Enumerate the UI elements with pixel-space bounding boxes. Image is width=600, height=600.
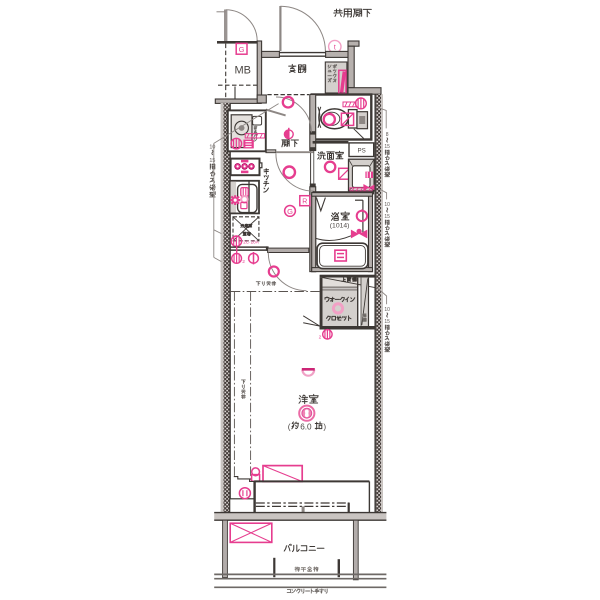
svg-text:(1014): (1014): [330, 222, 350, 229]
svg-text:6.0: 6.0: [300, 422, 312, 431]
svg-text:(: (: [288, 422, 291, 431]
svg-text:2: 2: [319, 334, 322, 340]
svg-text:PS: PS: [358, 148, 366, 155]
svg-text:t: t: [334, 45, 336, 52]
svg-text:15: 15: [384, 319, 390, 325]
svg-text:10: 10: [384, 202, 390, 208]
svg-text:2C·20A: 2C·20A: [243, 239, 260, 244]
svg-text:2: 2: [242, 259, 245, 265]
svg-text:15: 15: [384, 214, 390, 220]
svg-text:8: 8: [386, 132, 389, 138]
svg-text:R: R: [302, 199, 307, 206]
svg-text:G: G: [287, 207, 293, 216]
svg-text:MB: MB: [235, 65, 252, 77]
svg-text:10: 10: [209, 145, 215, 151]
svg-text:G: G: [239, 45, 245, 54]
svg-text:): ): [323, 422, 326, 431]
svg-text:15: 15: [209, 158, 215, 164]
svg-text:10: 10: [384, 307, 390, 313]
svg-text:15: 15: [384, 144, 390, 150]
